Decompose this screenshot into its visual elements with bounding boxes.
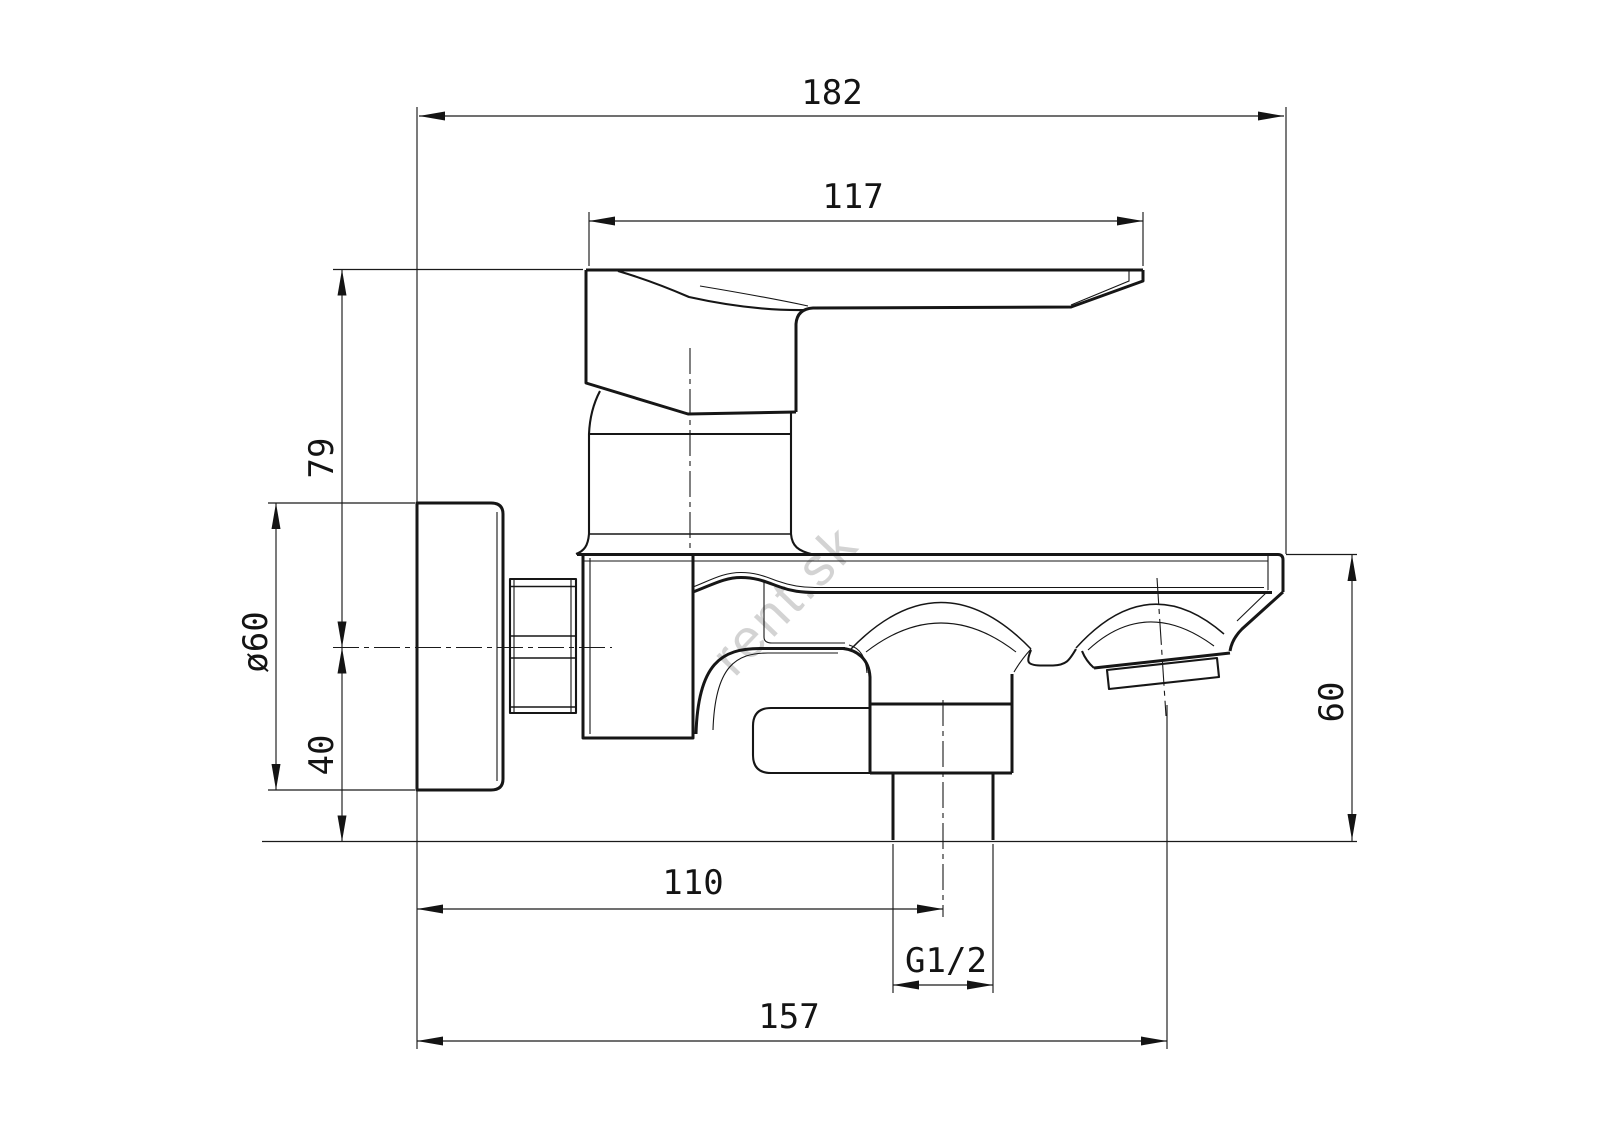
wall-flange bbox=[417, 503, 503, 790]
faucet-technical-drawing: rent.sk bbox=[0, 0, 1600, 1131]
dim-wall-to-shower-outlet: 110 bbox=[417, 863, 943, 914]
dim-center-to-bottom: 40 bbox=[302, 648, 347, 842]
svg-text:G1/2: G1/2 bbox=[905, 941, 987, 981]
dim-spout-height: 60 bbox=[1286, 555, 1357, 842]
shower-outlet bbox=[753, 674, 1012, 840]
svg-text:110: 110 bbox=[662, 863, 723, 903]
watermark: rent.sk bbox=[700, 513, 870, 686]
spout-deck bbox=[577, 555, 1283, 593]
drawing-canvas: rent.sk bbox=[0, 0, 1600, 1131]
svg-text:182: 182 bbox=[801, 73, 862, 113]
svg-text:117: 117 bbox=[822, 177, 883, 217]
cartridge-neck bbox=[576, 391, 813, 555]
svg-text:157: 157 bbox=[758, 997, 819, 1037]
svg-text:79: 79 bbox=[302, 438, 342, 479]
dim-wall-to-spout-axis: 157 bbox=[417, 705, 1167, 1049]
dim-handle-length: 117 bbox=[589, 177, 1143, 266]
dim-handle-height: 79 bbox=[302, 270, 583, 648]
hex-nut bbox=[510, 579, 576, 713]
svg-text:60: 60 bbox=[1312, 682, 1352, 723]
spout-aerator bbox=[1082, 591, 1283, 689]
svg-text:40: 40 bbox=[302, 735, 342, 776]
dim-overall-width: 182 bbox=[419, 73, 1286, 554]
svg-text:ø60: ø60 bbox=[236, 611, 276, 672]
handle-lever bbox=[586, 270, 1143, 414]
body-block bbox=[583, 555, 693, 738]
